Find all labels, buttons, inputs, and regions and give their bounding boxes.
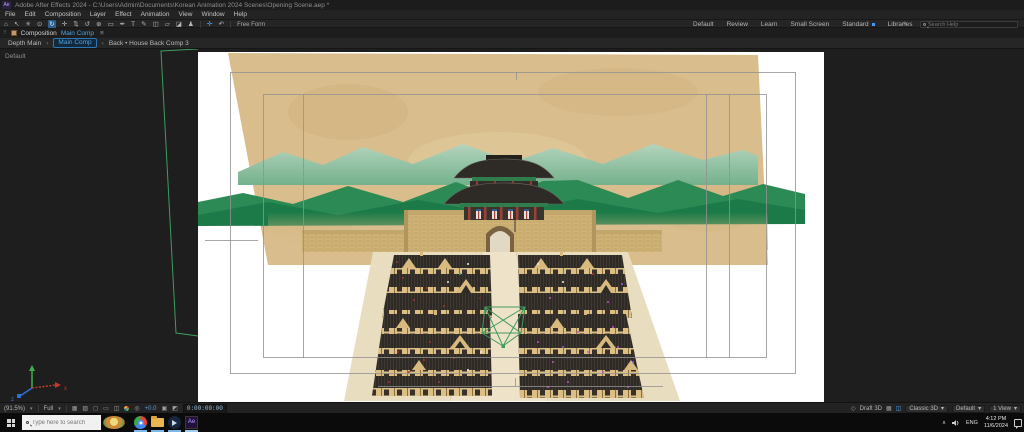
clock-time: 4:12 PM <box>984 416 1008 422</box>
menu-animation[interactable]: Animation <box>141 11 170 18</box>
menu-edit[interactable]: Edit <box>24 11 35 18</box>
exposure-icon[interactable]: ◎ <box>134 405 139 412</box>
channel-color-icon[interactable] <box>124 406 129 411</box>
grid-guides-icon[interactable]: ▦ <box>72 405 78 412</box>
clock-date: 11/6/2024 <box>984 423 1008 429</box>
layer-edge-guide <box>303 94 304 358</box>
breadcrumb-house-back-comp[interactable]: Back • House Back Comp 3 <box>109 40 189 47</box>
chevron-down-icon: ▾ <box>58 406 61 412</box>
extended-viewer-icon[interactable]: ◫ <box>896 405 902 412</box>
free-form-label[interactable]: Free Form <box>237 22 265 28</box>
view-layout-dropdown[interactable]: Default▾ <box>952 405 985 413</box>
layer-edge-guide <box>729 94 730 358</box>
layer-edge-guide <box>706 94 707 358</box>
breadcrumb-depth-main[interactable]: Depth Main <box>8 40 41 47</box>
breadcrumb-separator: ‹ <box>46 40 48 47</box>
search-icon <box>26 421 29 424</box>
show-snapshot-icon[interactable]: ◩ <box>172 405 178 412</box>
chevron-down-icon: ▾ <box>978 405 981 413</box>
view-count-dropdown[interactable]: 1 View▾ <box>989 405 1021 413</box>
menu-window[interactable]: Window <box>202 11 225 18</box>
panel-grip-icon[interactable]: ⠿ <box>3 30 7 36</box>
magnification-dropdown[interactable]: (91.5%) <box>4 406 25 412</box>
layer-edge-guide <box>205 240 258 241</box>
layer-bounds-inner[interactable] <box>263 94 767 358</box>
help-search-input[interactable] <box>928 22 1012 28</box>
menu-composition[interactable]: Composition <box>45 11 81 18</box>
region-of-interest-icon[interactable]: ▭ <box>103 405 109 412</box>
chevron-down-icon: ▾ <box>941 405 944 413</box>
action-center-icon[interactable] <box>1014 419 1022 427</box>
window-title: Adobe After Effects 2024 - C:\Users\Admi… <box>15 2 329 9</box>
menu-layer[interactable]: Layer <box>90 11 106 18</box>
ground-plane-icon[interactable]: ▦ <box>886 405 892 412</box>
chevron-down-icon: ▾ <box>1014 405 1017 413</box>
workspace-learn[interactable]: Learn <box>761 21 778 28</box>
workspace-small-screen[interactable]: Small Screen <box>791 21 830 28</box>
resolution-dropdown[interactable]: Full <box>44 406 54 412</box>
help-search-box <box>920 21 1018 28</box>
menu-bar: File Edit Composition Layer Effect Anima… <box>0 10 1024 19</box>
app-icon: Ae <box>2 1 11 9</box>
menu-effect[interactable]: Effect <box>115 11 132 18</box>
menu-view[interactable]: View <box>179 11 193 18</box>
breadcrumb-main-comp[interactable]: Main Comp <box>53 38 96 48</box>
media-app-icon[interactable] <box>168 416 181 429</box>
tray-chevron-icon[interactable]: ∧ <box>942 420 946 426</box>
taskbar-search-box <box>22 415 101 430</box>
taskbar-clock[interactable]: 4:12 PM 11/6/2024 <box>984 416 1008 429</box>
panel-icon <box>11 30 17 36</box>
viewer-footer: (91.5%) ▾ Full ▾ ▦ ▨ ◻ ▭ ◫ ◎ +0.0 ▣ ◩ 0:… <box>0 402 1024 413</box>
workspace-libraries[interactable]: Libraries <box>888 21 913 28</box>
food-app-icon[interactable] <box>103 416 125 429</box>
volume-icon[interactable] <box>952 419 960 427</box>
comp-breadcrumb: Depth Main ‹ Main Comp ‹ Back • House Ba… <box>0 38 1024 49</box>
file-explorer-icon[interactable] <box>151 418 164 427</box>
anchor-tick <box>515 378 516 386</box>
axis-gizmo: x z <box>10 364 74 402</box>
system-tray: ∧ ENG 4:12 PM 11/6/2024 <box>942 413 1022 432</box>
timecode-display[interactable]: 0:00:00:00 <box>183 404 227 414</box>
exposure-value[interactable]: +0.0 <box>145 406 157 412</box>
start-button[interactable] <box>7 419 15 427</box>
taskbar-search-input[interactable] <box>32 420 94 426</box>
z-axis-label: z <box>11 397 14 402</box>
transparency-grid-icon[interactable]: ▨ <box>82 405 88 412</box>
menu-help[interactable]: Help <box>234 11 247 18</box>
view-name-label: Default <box>5 53 26 60</box>
panel-menu-icon[interactable]: ≡ <box>100 30 104 37</box>
composition-tab-label[interactable]: Composition <box>21 30 57 37</box>
breadcrumb-separator: ‹ <box>102 40 104 47</box>
workspace-default[interactable]: Default <box>693 21 714 28</box>
workspace-review[interactable]: Review <box>727 21 748 28</box>
active-workspace-marker <box>872 23 875 26</box>
draft-3d-toggle[interactable]: Draft 3D <box>860 406 882 412</box>
title-bar: Ae Adobe After Effects 2024 - C:\Users\A… <box>0 0 1024 10</box>
workspace-overflow-icon[interactable]: » <box>903 21 906 27</box>
composition-canvas[interactable] <box>198 52 824 402</box>
workspace-standard[interactable]: Standard <box>842 21 874 28</box>
composition-viewer[interactable]: Default <box>0 49 1024 402</box>
toolbar-divider <box>230 21 231 28</box>
toolbar-divider <box>200 21 201 28</box>
chrome-icon[interactable] <box>134 416 147 429</box>
menu-file[interactable]: File <box>5 11 15 18</box>
after-effects-window: Ae Adobe After Effects 2024 - C:\Users\A… <box>0 0 1024 432</box>
tool-bar: ⌂ ↖ ✳ ⊙ ↻ ✛ ⇅ ↺ ⊕ ▭ ✒ T ✎ ◫ ▱ ◪ ♟ ✛ ↶ Fr… <box>0 19 1024 28</box>
layer-bottom-guide <box>378 386 663 387</box>
view-options-icon[interactable]: ◫ <box>114 405 120 412</box>
x-axis-label: x <box>64 386 67 392</box>
language-indicator[interactable]: ENG <box>966 420 978 426</box>
draft-3d-cube-icon[interactable]: ◇ <box>851 405 856 412</box>
anchor-tick <box>516 72 517 80</box>
composition-tab-comp-name[interactable]: Main Comp <box>61 30 94 37</box>
after-effects-taskbar-icon[interactable]: Ae <box>185 416 198 429</box>
mask-visibility-icon[interactable]: ◻ <box>93 405 98 412</box>
snapshot-camera-icon[interactable]: ▣ <box>162 405 168 412</box>
chevron-down-icon: ▾ <box>30 406 33 412</box>
composition-panel-tab-bar: ⠿ Composition Main Comp ≡ <box>0 28 1024 38</box>
search-icon <box>923 23 926 26</box>
windows-taskbar: Ae ∧ ENG 4:12 PM 11/6/2024 <box>0 413 1024 432</box>
renderer-dropdown[interactable]: Classic 3D▾ <box>905 405 948 413</box>
